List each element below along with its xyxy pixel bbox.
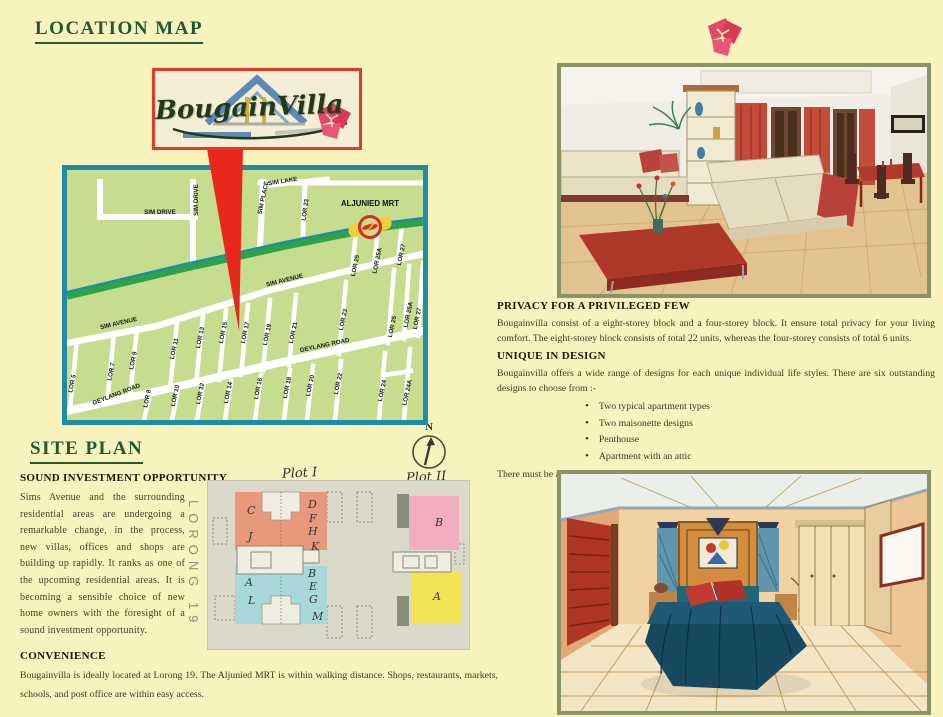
plot2-grey-south	[397, 596, 409, 626]
street-label: SIM DRIVE	[144, 209, 176, 216]
compass-circle	[409, 433, 449, 473]
design-option-item: Penthouse	[585, 432, 935, 447]
street-label: LOR 20	[305, 374, 316, 397]
plot2-grey-north	[397, 494, 409, 528]
street-label: LOR 24A	[401, 379, 413, 407]
unit-letter: A	[244, 576, 253, 589]
brochure-page: LOCATION MAP BougainVilla	[0, 0, 943, 717]
site-plan-heading-wrap: SITE PLAN	[30, 438, 143, 464]
street-label: LOR 21	[288, 321, 299, 344]
privacy-body: Bougainvilla consist of a eight-storey b…	[497, 316, 935, 346]
unit-letter: D	[307, 498, 317, 511]
street-label: LOR 24	[377, 379, 388, 402]
unit-letter: M	[311, 610, 324, 623]
unit-letter: B	[307, 567, 316, 580]
sound-investment-body: Sims Avenue and the surrounding resident…	[20, 490, 185, 639]
unit-letter: B	[434, 516, 443, 529]
unit-letter: C	[247, 504, 256, 517]
street-label: LOR 5	[67, 374, 78, 394]
bedroom-illustration	[557, 470, 931, 715]
convenience-body: Bougainvilla is ideally located at Loron…	[20, 667, 498, 704]
street-label: LOR 23	[338, 308, 349, 331]
privacy-heading: PRIVACY FOR A PRIVILEGED FEW	[497, 300, 935, 312]
unique-design-intro: Bougainvilla offers a wide range of desi…	[497, 366, 935, 396]
unit-letter: J	[246, 530, 253, 543]
bougainvillea-flower-icon	[696, 12, 748, 64]
street-label: LOR 16	[253, 377, 264, 400]
design-option-item: Two typical apartment types	[585, 399, 935, 414]
unit-letter: F	[308, 512, 317, 525]
design-option-item: Two maisonette designs	[585, 416, 935, 431]
street-label: LOR 7	[106, 362, 117, 382]
location-map-heading-wrap: LOCATION MAP	[35, 18, 203, 44]
unit-letter: G	[309, 593, 318, 606]
plot2-block-north	[409, 496, 459, 550]
convenience-section: CONVENIENCE Bougainvilla is ideally loca…	[20, 650, 505, 704]
site-plan-map: CJDFHKALBEGMBA	[207, 480, 470, 655]
plot1-core	[237, 546, 303, 574]
unique-design-heading: UNIQUE IN DESIGN	[497, 350, 935, 362]
plot2-core	[393, 552, 451, 572]
unique-design-section: UNIQUE IN DESIGN Bougainvilla offers a w…	[497, 350, 935, 482]
street-label: LOR 19	[262, 323, 273, 346]
privacy-section: PRIVACY FOR A PRIVILEGED FEW Bougainvill…	[497, 300, 935, 346]
street-label: ALJUNIED MRT	[341, 199, 399, 208]
unit-letter: E	[308, 580, 317, 593]
street-label: LOR 9	[128, 351, 139, 371]
living-room-illustration	[557, 63, 931, 298]
street-label: LOR 14	[223, 381, 234, 404]
site-plan-title: SITE PLAN	[30, 438, 143, 464]
location-pointer-arrow	[196, 147, 252, 335]
design-options-list: Two typical apartment typesTwo maisonett…	[585, 399, 935, 464]
street-label: LOR 22	[333, 372, 344, 395]
street-label: LOR 18	[282, 376, 293, 399]
lorong-19-label: LORONG 19	[186, 500, 201, 635]
unit-letter: A	[432, 590, 441, 603]
unit-letter: K	[310, 540, 320, 553]
logo-wordmark: BougainVilla	[155, 90, 338, 126]
design-option-item: Apartment with an attic	[585, 449, 935, 464]
bougainvilla-logo: BougainVilla	[152, 68, 362, 150]
unit-letter: H	[307, 525, 318, 538]
street-label: LOR 11	[169, 337, 180, 360]
site-plan-svg: CJDFHKALBEGMBA	[207, 480, 470, 650]
location-map-title: LOCATION MAP	[35, 18, 203, 44]
bedroom-svg	[561, 474, 927, 711]
living-room-svg	[561, 67, 927, 294]
convenience-heading: CONVENIENCE	[20, 650, 505, 662]
unit-letter: L	[247, 594, 255, 607]
